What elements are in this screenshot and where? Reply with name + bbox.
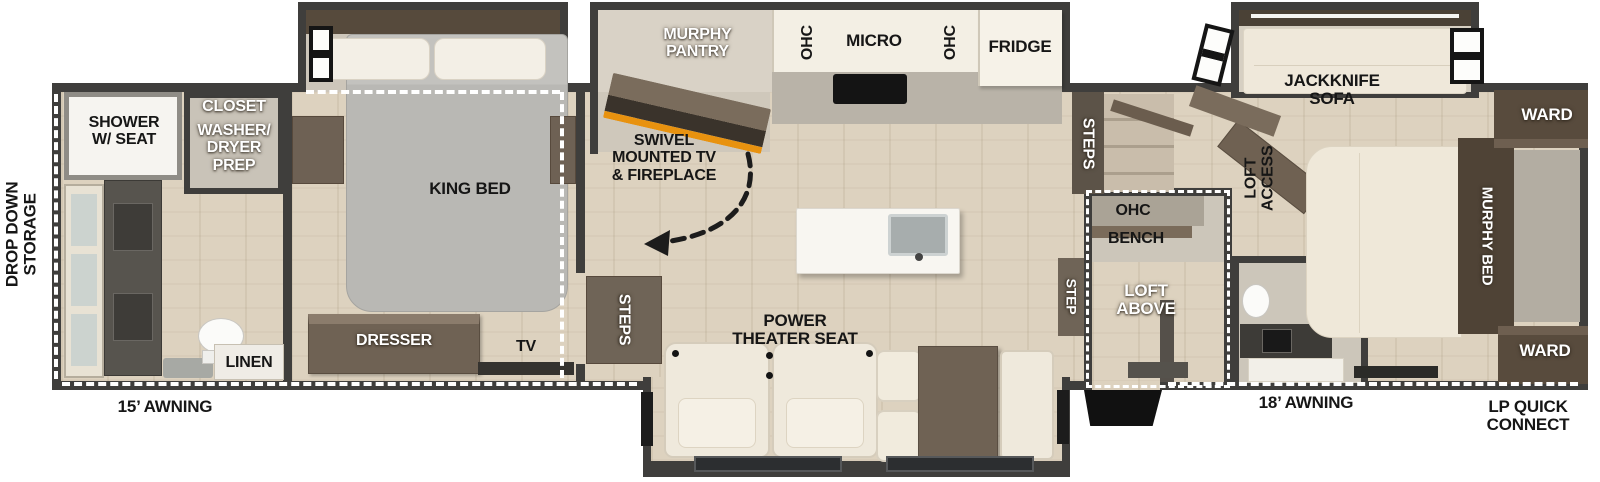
- ohc-left-label-wrap: OHC: [794, 14, 820, 72]
- nightstand-left: [292, 116, 344, 184]
- murphy-bed-label-wrap: MURPHY BED: [1458, 138, 1514, 334]
- bedroom-window-icon: [309, 26, 333, 82]
- pillow-left: [318, 38, 430, 80]
- awning-left-dashes: [62, 382, 637, 386]
- cooktop: [833, 74, 907, 104]
- step-label-wrap: STEP: [1052, 258, 1090, 336]
- steps-front-label-wrap: STEPS: [1066, 94, 1110, 194]
- murphy-bed-seam: [1359, 153, 1360, 333]
- recline-button-icon: [672, 350, 679, 357]
- bedroom-kitchen-wall-upper: [576, 83, 585, 273]
- steps-bedroom-label: STEPS: [615, 294, 632, 345]
- step-label: STEP: [1063, 279, 1078, 315]
- recline-button-icon: [866, 350, 873, 357]
- king-bed-label: KING BED: [390, 180, 550, 198]
- ohc-right-label-wrap: OHC: [937, 14, 963, 72]
- sink-icon: [113, 203, 153, 251]
- jackknife-sofa-label: JACKKNIFE SOFA: [1277, 72, 1387, 109]
- headboard: [306, 10, 560, 34]
- seat-cushion: [678, 398, 756, 448]
- bedroom-tv-label: TV: [486, 338, 566, 355]
- cabinet-panel: [71, 314, 97, 366]
- loft-access-label: LOFT ACCESS: [1243, 145, 1278, 210]
- slide-window-icon: [886, 456, 1034, 472]
- washer-dryer-label: WASHER/ DRYER PREP: [188, 122, 280, 174]
- bed-slide-footprint-dashes: [560, 92, 564, 378]
- ward-bottom-label: WARD: [1505, 342, 1585, 360]
- murphy-bed-label: MURPHY BED: [1478, 187, 1494, 286]
- slide-window-icon: [641, 392, 653, 446]
- steps-bedroom-label-wrap: STEPS: [586, 276, 662, 364]
- mid-bath-cabinet: [1248, 358, 1344, 382]
- loft-access-label-wrap: LOFT ACCESS: [1210, 132, 1310, 224]
- awning-left-label: 15’ AWNING: [95, 398, 235, 416]
- loft-ohc-label: OHC: [1108, 202, 1158, 219]
- steps-front-label: STEPS: [1079, 118, 1096, 169]
- pillow-right: [434, 38, 546, 80]
- murphy-bed-platform: [1514, 150, 1580, 322]
- power-theater-seat-label: POWER THEATER SEAT: [700, 312, 890, 349]
- ohc-left-label: OHC: [798, 26, 815, 61]
- slide-window-icon: [694, 456, 842, 472]
- awning-right-label: 18’ AWNING: [1236, 394, 1376, 412]
- dinette-table: [918, 346, 998, 464]
- entry-steps: [1084, 390, 1162, 426]
- bath-bedroom-wall: [283, 83, 292, 390]
- micro-label: MICRO: [834, 32, 914, 50]
- fridge-label: FRIDGE: [980, 38, 1060, 56]
- rv-floorplan: DROP DOWN STORAGE 15’ AWNING 18’ AWNING …: [0, 0, 1600, 482]
- murphy-pantry-label: MURPHY PANTRY: [620, 26, 775, 61]
- dinette-chair: [876, 410, 922, 462]
- recline-button-icon: [766, 352, 773, 359]
- skylight-glass: [1251, 14, 1459, 18]
- murphy-bed-sofa: [1306, 146, 1462, 338]
- toilet-icon: [1242, 284, 1270, 318]
- loft-above-label: LOFT ABOVE: [1091, 282, 1201, 319]
- seat-cushion: [786, 398, 864, 448]
- drop-down-storage-label: DROP DOWN STORAGE: [4, 181, 41, 287]
- sofa-window-right-icon: [1450, 28, 1484, 84]
- theater-seat-left: [664, 342, 770, 458]
- sofa-window-left-icon: [1191, 23, 1234, 87]
- sink-icon: [113, 293, 153, 341]
- island-sink-icon: [888, 214, 948, 256]
- dinette-bench: [1000, 350, 1054, 460]
- ward-top-label: WARD: [1502, 106, 1592, 124]
- slide-window-icon: [1057, 390, 1069, 444]
- bath-vanity: [104, 180, 162, 376]
- shower-label: SHOWER W/ SEAT: [72, 114, 176, 149]
- drop-down-storage-label-wrap: DROP DOWN STORAGE: [0, 206, 102, 262]
- front-floor-mat: [1354, 366, 1438, 378]
- theater-seat-right: [772, 342, 878, 458]
- bedroom-kitchen-wall-lower: [576, 364, 585, 390]
- recline-button-icon: [766, 372, 773, 379]
- swivel-tv-label: SWIVEL MOUNTED TV & FIREPLACE: [596, 132, 732, 184]
- bench-label: BENCH: [1098, 230, 1174, 247]
- sink-icon: [1262, 329, 1292, 353]
- ohc-right-label: OHC: [941, 26, 958, 61]
- sofa-seam: [1254, 65, 1456, 66]
- bed-slide-seam-dashes: [306, 90, 560, 94]
- closet-label: CLOSET: [190, 98, 278, 115]
- faucet-icon: [915, 253, 923, 261]
- sofa-skylight: [1239, 10, 1471, 26]
- dresser-label: DRESSER: [308, 332, 480, 349]
- lp-quick-connect-label: LP QUICK CONNECT: [1478, 398, 1578, 435]
- dinette-chair: [876, 350, 922, 402]
- linen-label: LINEN: [216, 354, 282, 371]
